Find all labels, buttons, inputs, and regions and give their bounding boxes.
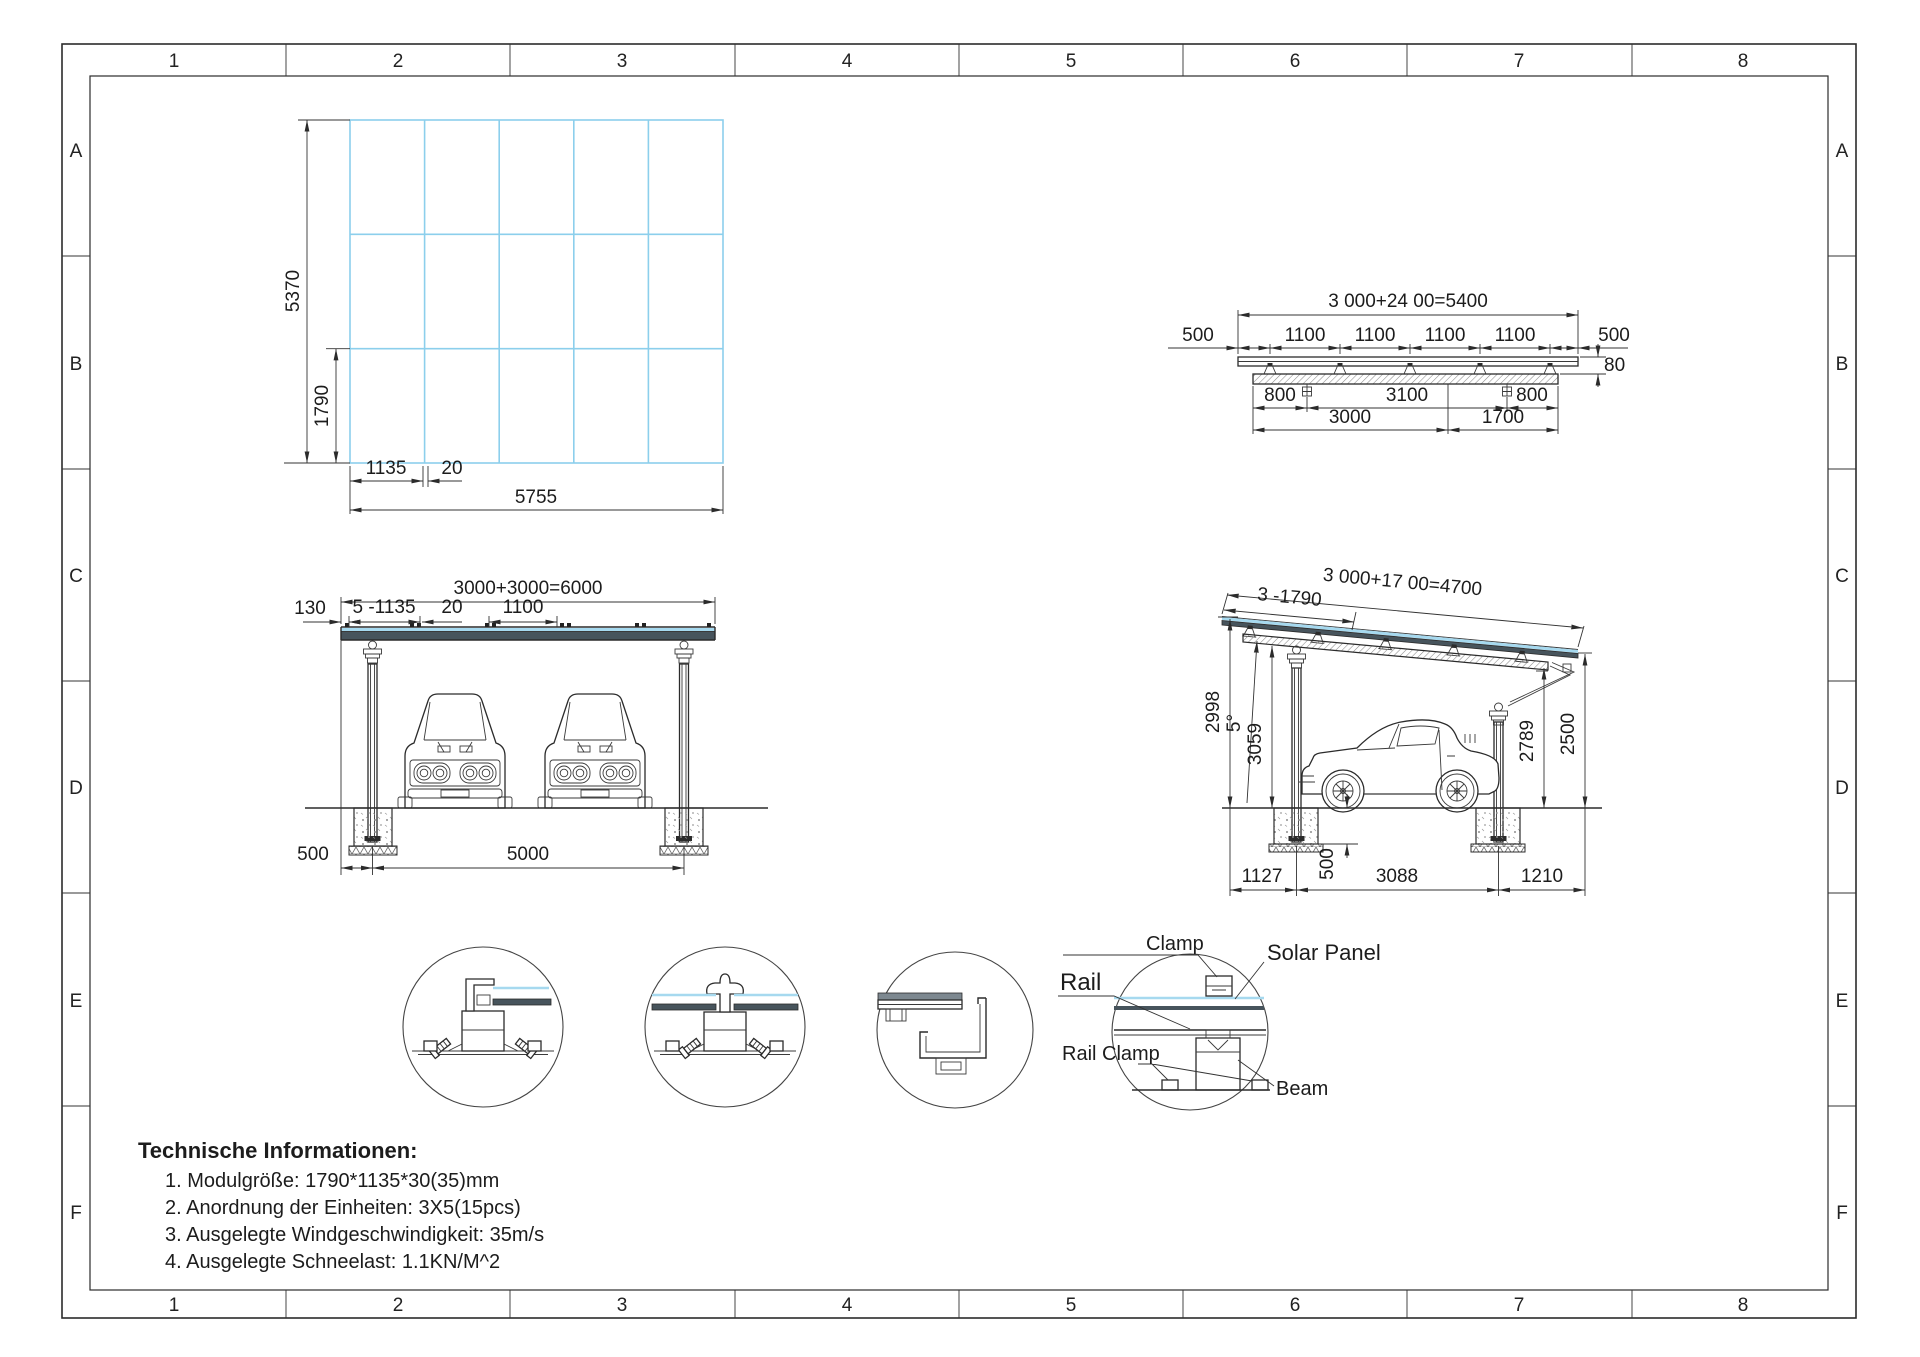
zone-label: B [70, 354, 83, 375]
tech-info-title: Technische Informationen: [138, 1138, 418, 1163]
zone-label: A [70, 141, 83, 162]
technical-drawing-canvas: 1 2 3 4 5 6 7 8 1 2 3 4 5 6 7 8 A B C D … [0, 0, 1920, 1357]
dim-span: 5000 [507, 844, 549, 865]
dim-gap: 20 [441, 458, 462, 479]
dim-side-modules: 3 -1790 [1256, 584, 1322, 611]
zone-label: 7 [1514, 1295, 1525, 1316]
dim-bolt-mid: 3100 [1386, 385, 1428, 406]
zone-label: 1 [169, 51, 180, 72]
dim-modules: 5 -1135 [352, 597, 415, 618]
dim-overhang: 130 [294, 598, 326, 619]
zone-row-labels-right: A B C D E F [1835, 141, 1849, 1224]
dim-end-left: 500 [1182, 325, 1214, 346]
zone-label: 2 [393, 51, 404, 72]
zone-label: 7 [1514, 51, 1525, 72]
dim-bolt-right: 800 [1516, 385, 1548, 406]
car-front-icon [398, 694, 512, 808]
dim-total-width: 5755 [515, 487, 557, 508]
tech-info-item: 1. Modulgröße: 1790*1135*30(35)mm [165, 1170, 499, 1192]
zone-label: 6 [1290, 1295, 1301, 1316]
dim-angle: 5° [1224, 714, 1245, 732]
dim-end-right: 500 [1598, 325, 1630, 346]
zone-label: E [1836, 991, 1849, 1012]
zone-label: 4 [842, 51, 853, 72]
zone-label: 1 [169, 1295, 180, 1316]
zone-column-labels-top: 1 2 3 4 5 6 7 8 [169, 51, 1749, 72]
zone-label: 3 [617, 51, 628, 72]
zone-column-labels-bottom: 1 2 3 4 5 6 7 8 [169, 1295, 1749, 1316]
zone-label: 8 [1738, 51, 1749, 72]
zone-label: 8 [1738, 1295, 1749, 1316]
zone-label: A [1836, 141, 1849, 162]
zone-label: 5 [1066, 51, 1077, 72]
dim-rail-total: 3 000+24 00=5400 [1328, 291, 1488, 312]
tech-info-item: 4. Ausgelegte Schneelast: 1.1KN/M^2 [165, 1251, 500, 1273]
car-front-icon [538, 694, 652, 808]
panel-grid [350, 120, 723, 463]
zone-label: 4 [842, 1295, 853, 1316]
beam [1253, 374, 1558, 384]
technical-info: Technische Informationen: 1. Modulgröße:… [138, 1138, 544, 1273]
detail-assembly-labeled: Clamp Solar Panel Rail Rail Clamp Beam [1058, 933, 1381, 1110]
drawing-sheet: 1 2 3 4 5 6 7 8 1 2 3 4 5 6 7 8 A B C D … [0, 0, 1920, 1357]
detail-end-clamp [403, 947, 563, 1107]
footings [1269, 808, 1525, 852]
front-view: 3000+3000=6000 130 5 -1135 20 1100 500 5… [294, 578, 768, 875]
detail-beam-section [877, 952, 1033, 1108]
posts [364, 641, 694, 842]
dim-front-height: 2998 [1203, 691, 1224, 733]
dim-front-gap: 20 [441, 597, 462, 618]
zone-label: D [69, 778, 83, 799]
zone-label: 6 [1290, 51, 1301, 72]
dim-beam-height: 3059 [1245, 723, 1266, 765]
zone-label: C [69, 566, 83, 587]
roof-assembly [341, 623, 715, 640]
zone-label: 5 [1066, 1295, 1077, 1316]
zone-label: F [70, 1203, 82, 1224]
zone-ticks [62, 44, 1856, 1318]
dim-spacing: 1100 [1495, 325, 1536, 346]
dim-front-offset: 1127 [1242, 866, 1283, 887]
sheet-frame: 1 2 3 4 5 6 7 8 1 2 3 4 5 6 7 8 A B C D … [62, 44, 1856, 1318]
zone-label: B [1836, 354, 1849, 375]
zone-label: E [70, 991, 83, 1012]
dim-seg-front: 3000 [1329, 407, 1371, 428]
dim-footing-depth: 500 [1317, 848, 1338, 880]
dim-post-offset: 500 [297, 844, 329, 865]
side-view: 3 000+17 00=4700 3 -1790 2998 5° 3059 27… [1203, 565, 1602, 896]
dim-spacing: 1100 [1285, 325, 1326, 346]
zone-label: 2 [393, 1295, 404, 1316]
dim-rear-beam-height: 2789 [1517, 720, 1538, 762]
plan-view: 5370 1790 1135 20 5755 [283, 120, 723, 514]
plan-dimensions: 5370 1790 1135 20 5755 [283, 120, 723, 514]
dim-spacing: 1100 [1355, 325, 1396, 346]
dim-rear-offset: 1210 [1521, 866, 1563, 887]
tech-info-item: 2. Anordnung der Einheiten: 3X5(15pcs) [165, 1197, 521, 1219]
callout-beam: Beam [1276, 1078, 1328, 1100]
callout-rail: Rail [1060, 969, 1101, 996]
dim-rail-spacing: 1100 [503, 597, 544, 618]
dim-module-height: 1790 [312, 385, 333, 427]
dim-total-height: 5370 [283, 270, 304, 312]
dim-bolt-left: 800 [1264, 385, 1296, 406]
dim-spacing: 1100 [1425, 325, 1466, 346]
sloped-roof [1222, 617, 1578, 671]
zone-row-labels-left: A B C D E F [69, 141, 83, 1224]
dim-rear-height: 2500 [1558, 713, 1579, 755]
callout-clamp: Clamp [1146, 933, 1204, 955]
dim-side-total: 3 000+17 00=4700 [1322, 565, 1483, 601]
zone-label: D [1835, 778, 1849, 799]
zone-label: F [1836, 1203, 1848, 1224]
callout-rail-clamp: Rail Clamp [1062, 1043, 1160, 1065]
dim-span: 3088 [1376, 866, 1418, 887]
dim-edge-height: 80 [1604, 355, 1625, 376]
car-side-icon [1299, 720, 1499, 812]
tech-info-item: 3. Ausgelegte Windgeschwindigkeit: 35m/s [165, 1224, 544, 1246]
dim-front-total: 3000+3000=6000 [454, 578, 603, 599]
zone-label: C [1835, 566, 1849, 587]
detail-mid-clamp [645, 947, 805, 1107]
callout-solar-panel: Solar Panel [1267, 940, 1381, 965]
dim-seg-rear: 1700 [1482, 407, 1524, 428]
zone-label: 3 [617, 1295, 628, 1316]
rail-top-view: 3 000+24 00=5400 500 1100 1100 1100 1100… [1168, 291, 1630, 434]
dim-module-width: 1135 [366, 458, 407, 479]
